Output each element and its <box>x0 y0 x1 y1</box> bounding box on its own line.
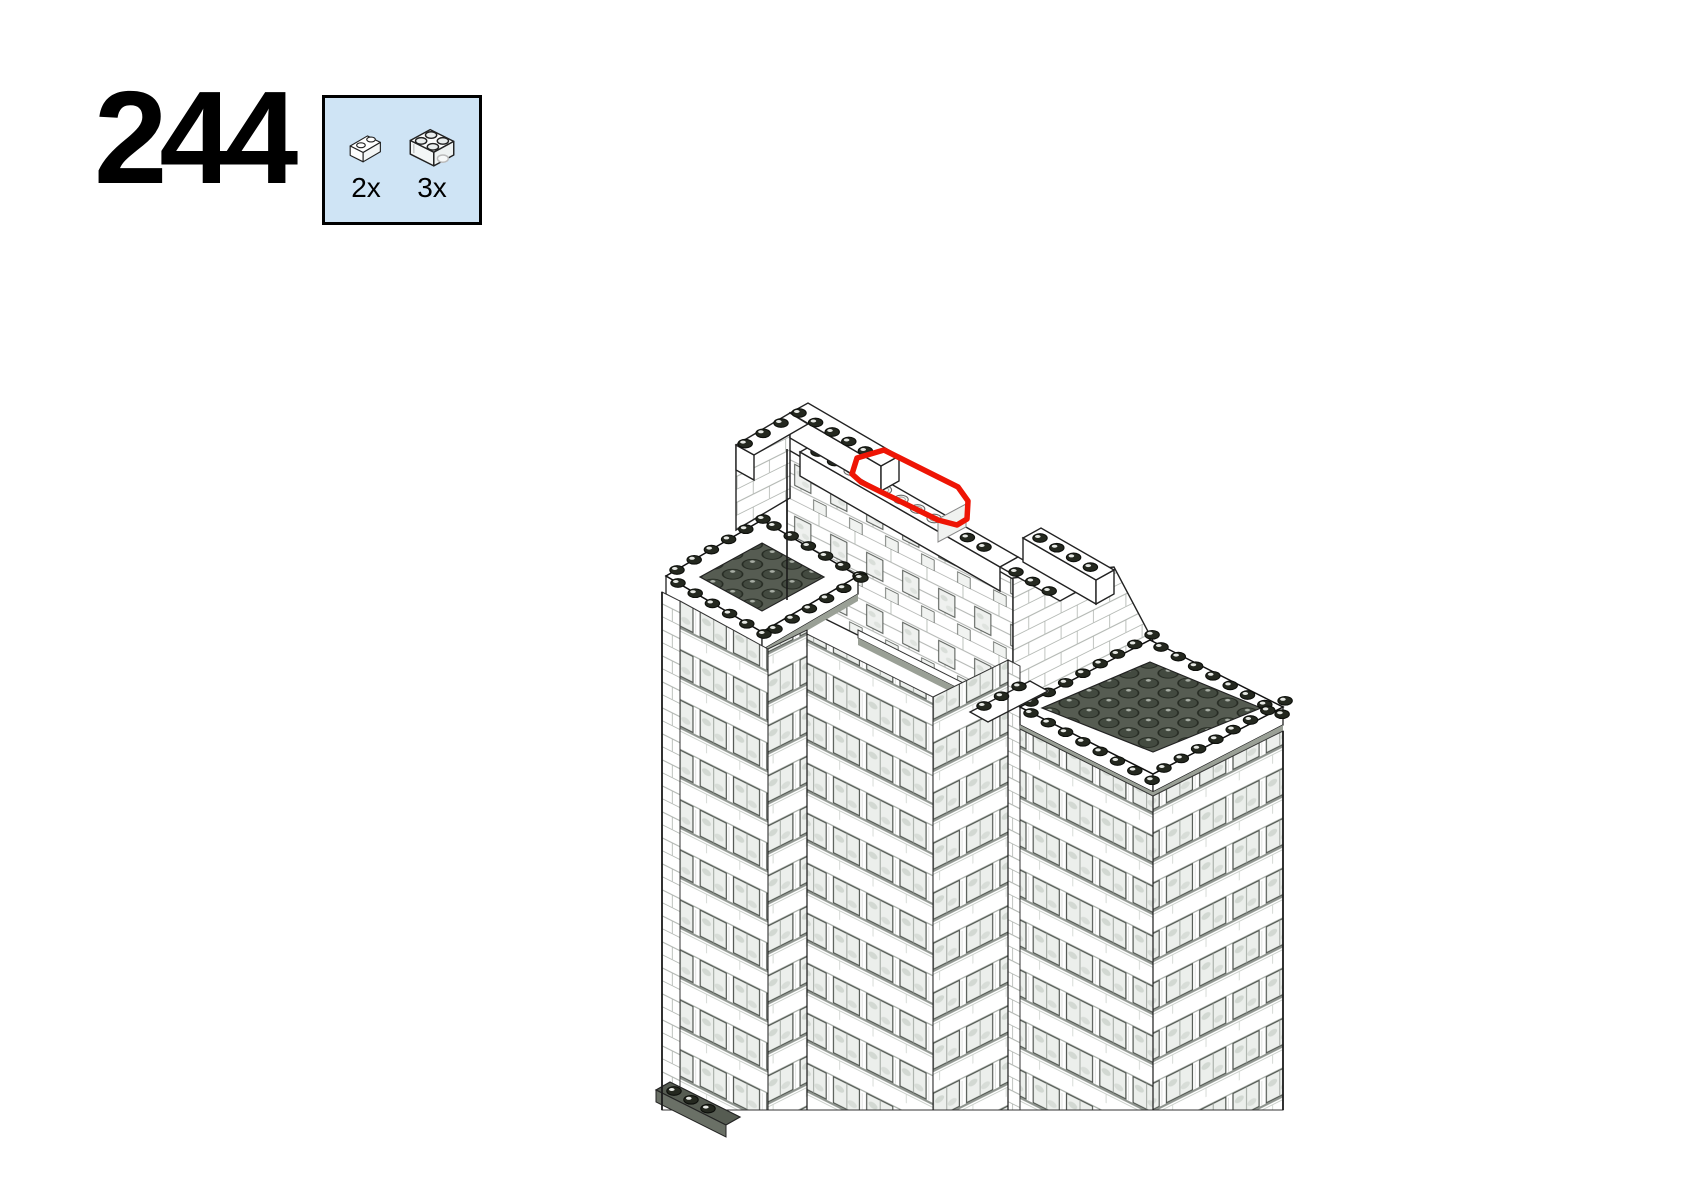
left-wing-facade <box>662 592 807 1110</box>
building-illustration <box>0 0 1684 1192</box>
instruction-page: 244 2x <box>0 0 1684 1192</box>
